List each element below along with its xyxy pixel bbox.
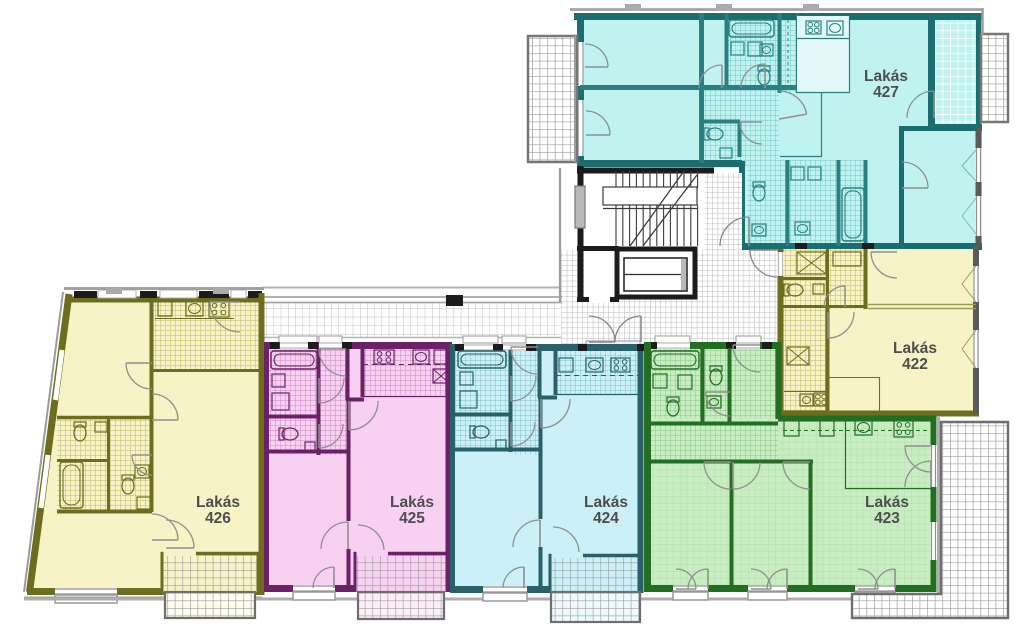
svg-text:Lakás: Lakás bbox=[584, 494, 628, 511]
svg-text:Lakás: Lakás bbox=[865, 494, 909, 511]
svg-text:Lakás: Lakás bbox=[196, 494, 240, 511]
svg-text:423: 423 bbox=[874, 510, 900, 527]
svg-text:425: 425 bbox=[399, 510, 425, 527]
svg-text:427: 427 bbox=[873, 84, 899, 101]
svg-text:Lakás: Lakás bbox=[893, 340, 937, 357]
svg-text:424: 424 bbox=[593, 510, 619, 527]
svg-text:426: 426 bbox=[205, 510, 231, 527]
svg-text:Lakás: Lakás bbox=[864, 68, 908, 85]
svg-text:422: 422 bbox=[902, 356, 928, 373]
svg-text:Lakás: Lakás bbox=[390, 494, 434, 511]
